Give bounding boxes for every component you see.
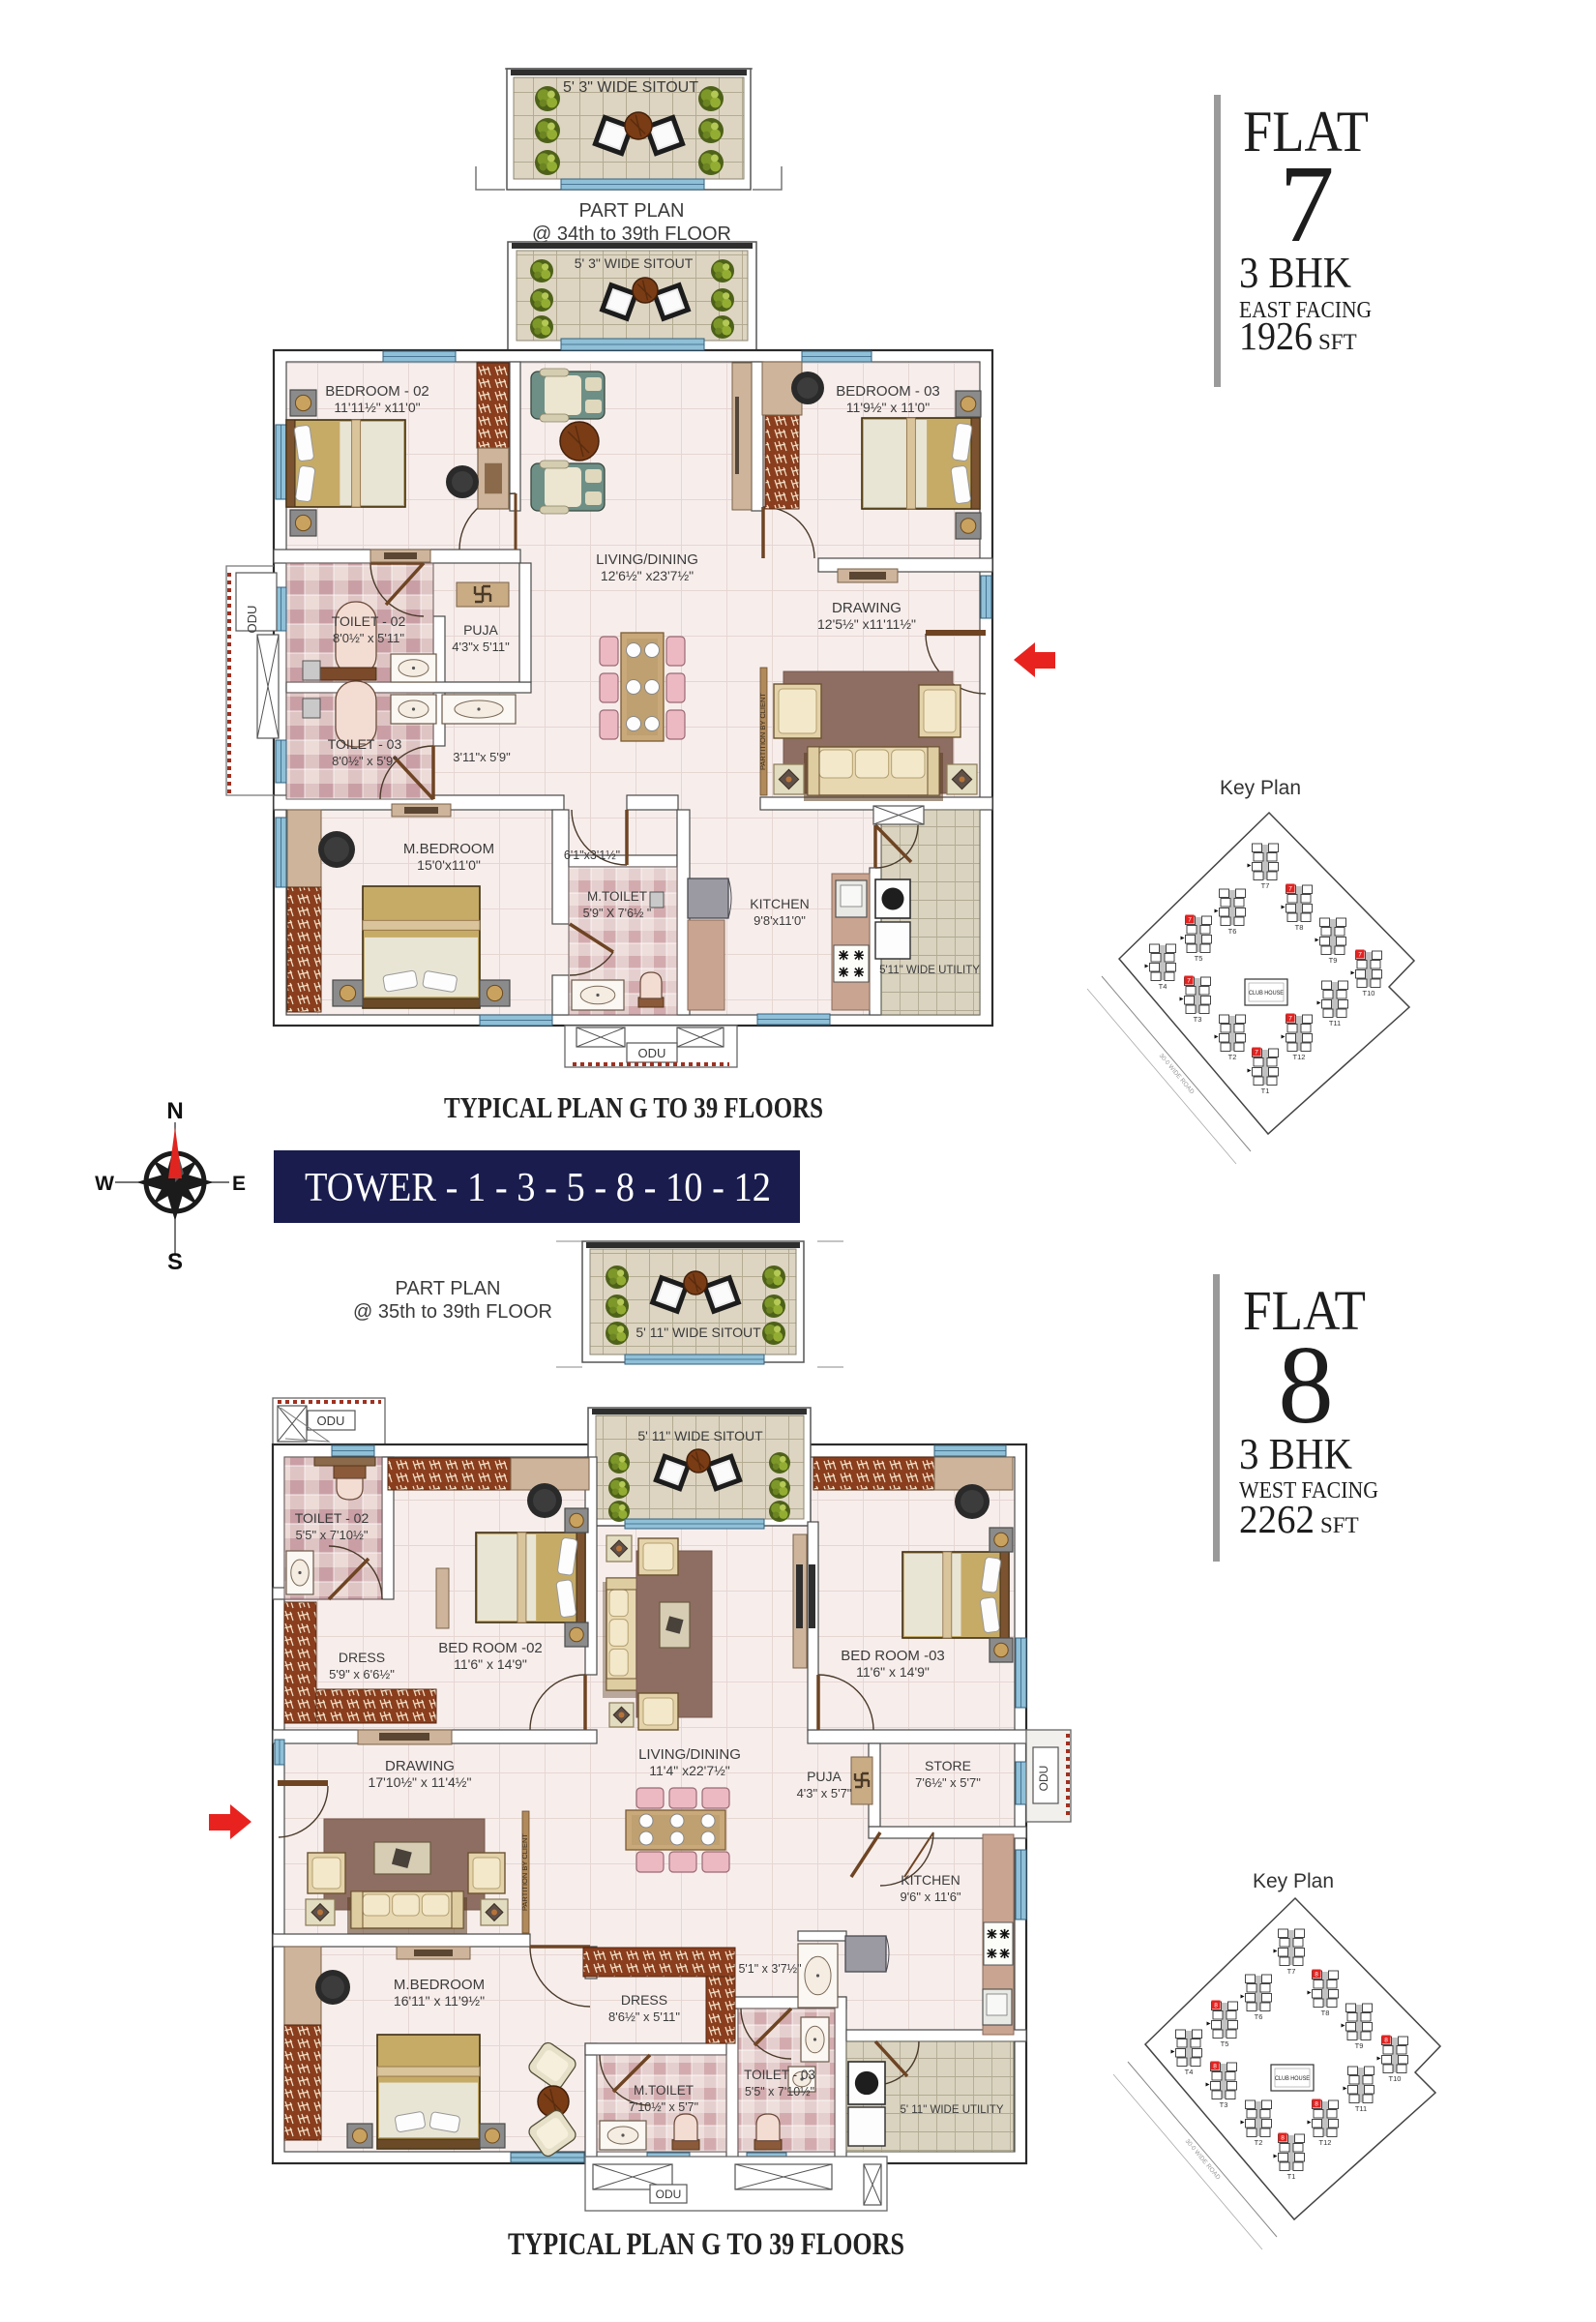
svg-text:8: 8 [1281,2135,1285,2142]
svg-text:T3: T3 [1194,1015,1202,1024]
svg-text:7: 7 [1188,917,1192,924]
svg-text:7: 7 [1358,952,1362,959]
svg-text:TOILET - 03: TOILET - 03 [328,736,402,752]
svg-text:5'5" x 7'10½": 5'5" x 7'10½" [745,2085,814,2099]
svg-text:15'0'x11'0": 15'0'x11'0" [417,857,481,873]
svg-text:PUJA: PUJA [463,622,498,638]
svg-text:DRAWING: DRAWING [385,1758,455,1774]
svg-text:TOILET - 02: TOILET - 02 [295,1510,369,1526]
svg-text:ODU: ODU [317,1414,345,1428]
svg-text:T12: T12 [1293,1053,1306,1061]
svg-text:T6: T6 [1255,2012,1263,2021]
svg-text:3 BHK: 3 BHK [1239,1430,1352,1478]
svg-text:T8: T8 [1295,923,1304,932]
svg-text:S: S [167,1249,183,1275]
svg-text:ODU: ODU [245,606,259,634]
svg-text:5' 11" WIDE UTILITY: 5' 11" WIDE UTILITY [900,2104,1003,2116]
svg-text:TOILET - 03: TOILET - 03 [744,2068,815,2082]
svg-text:LIVING/DINING: LIVING/DINING [596,551,698,568]
svg-text:7: 7 [1288,1016,1292,1023]
svg-text:M.TOILET: M.TOILET [587,889,647,904]
svg-text:T10: T10 [1363,989,1375,997]
svg-text:17'10½" x 11'4½": 17'10½" x 11'4½" [369,1774,472,1790]
svg-text:BED ROOM -02: BED ROOM -02 [438,1640,543,1656]
svg-text:ODU: ODU [656,2188,682,2201]
svg-text:5'9" x 6'6½": 5'9" x 6'6½" [329,1667,395,1682]
svg-text:1926: 1926 [1239,313,1313,358]
svg-text:T2: T2 [1255,2138,1263,2147]
svg-text:T11: T11 [1355,2104,1367,2113]
svg-text:T2: T2 [1228,1053,1237,1061]
svg-text:11'6" x 14'9": 11'6" x 14'9" [856,1664,930,1680]
svg-text:2262: 2262 [1239,1497,1315,1541]
svg-text:TYPICAL PLAN G TO 39 FLOORS: TYPICAL PLAN G TO 39 FLOORS [444,1090,823,1124]
svg-text:ODU: ODU [638,1046,666,1060]
svg-text:7: 7 [1255,1050,1258,1057]
svg-text:E: E [232,1173,246,1195]
svg-text:M.BEDROOM: M.BEDROOM [403,841,494,857]
svg-text:7: 7 [1288,886,1292,893]
svg-text:5' 11" WIDE SITOUT: 5' 11" WIDE SITOUT [637,1428,763,1444]
svg-text:T12: T12 [1319,2138,1332,2147]
svg-text:T9: T9 [1355,2041,1364,2050]
svg-text:PARTITION BY CLIENT: PARTITION BY CLIENT [758,693,767,770]
svg-text:DRESS: DRESS [621,1992,667,2008]
svg-text:7: 7 [1280,142,1335,265]
svg-text:SFT: SFT [1318,330,1357,354]
svg-text:PARTITION BY CLIENT: PARTITION BY CLIENT [520,1833,529,1911]
svg-text:8: 8 [1315,2101,1318,2108]
svg-text:4'3"x 5'11": 4'3"x 5'11" [452,640,510,654]
svg-text:8: 8 [1213,2064,1217,2070]
svg-text:7'10½" x 5'7": 7'10½" x 5'7" [629,2100,698,2114]
svg-text:12'5½" x11'11½": 12'5½" x11'11½" [817,616,916,632]
svg-text:T5: T5 [1195,954,1203,963]
svg-text:8'6½" x 5'11": 8'6½" x 5'11" [608,2009,680,2024]
svg-text:T7: T7 [1261,881,1270,890]
svg-text:T1: T1 [1287,2172,1296,2181]
svg-text:T3: T3 [1220,2100,1228,2109]
svg-text:M.TOILET: M.TOILET [634,2083,694,2098]
svg-text:5'5" x 7'10½": 5'5" x 7'10½" [296,1528,369,1542]
svg-text:KITCHEN: KITCHEN [901,1872,960,1888]
svg-text:7'6½" x 5'7": 7'6½" x 5'7" [915,1775,981,1790]
svg-text:LIVING/DINING: LIVING/DINING [638,1746,741,1763]
svg-text:W: W [95,1173,114,1195]
svg-text:DRAWING: DRAWING [832,600,901,616]
svg-text:PART PLAN: PART PLAN [579,200,685,222]
svg-text:KITCHEN: KITCHEN [750,896,809,911]
svg-text:T1: T1 [1261,1087,1270,1095]
svg-text:4'3" x 5'7": 4'3" x 5'7" [797,1786,852,1801]
svg-text:T5: T5 [1221,2039,1229,2048]
svg-text:3'11"x 5'9": 3'11"x 5'9" [453,750,511,764]
svg-text:BEDROOM - 03: BEDROOM - 03 [836,383,940,400]
svg-text:9'8'x11'0": 9'8'x11'0" [754,913,806,928]
svg-text:8: 8 [1384,2038,1388,2044]
svg-text:11'9½" x 11'0": 11'9½" x 11'0" [846,400,930,415]
svg-text:16'11" x 11'9½": 16'11" x 11'9½" [394,1993,485,2009]
svg-text:BEDROOM - 02: BEDROOM - 02 [325,383,429,400]
svg-text:SFT: SFT [1320,1513,1359,1537]
svg-text:6'1"x3'1½": 6'1"x3'1½" [564,848,620,862]
svg-text:CLUB HOUSE: CLUB HOUSE [1275,2075,1311,2082]
svg-text:T10: T10 [1389,2074,1402,2083]
svg-text:8'0½" x 5'11": 8'0½" x 5'11" [333,631,404,645]
svg-text:11'4" x22'7½": 11'4" x22'7½" [649,1763,730,1778]
svg-text:12'6½" x23'7½": 12'6½" x23'7½" [601,568,694,583]
svg-text:STORE: STORE [925,1758,971,1773]
svg-text:Key Plan: Key Plan [1253,1870,1334,1892]
svg-text:8'0½" x 5'9": 8'0½" x 5'9" [332,754,398,768]
svg-text:PART PLAN: PART PLAN [396,1278,501,1299]
svg-text:BED ROOM -03: BED ROOM -03 [841,1648,945,1664]
svg-text:TYPICAL PLAN G TO 39 FLOORS: TYPICAL PLAN G TO 39 FLOORS [508,2227,904,2262]
svg-text:T8: T8 [1321,2009,1330,2017]
svg-text:N: N [166,1098,183,1124]
svg-text:3 BHK: 3 BHK [1239,249,1351,297]
svg-text:8: 8 [1278,1324,1334,1446]
svg-text:TOILET - 02: TOILET - 02 [332,613,406,629]
svg-text:ODU: ODU [1037,1766,1050,1792]
svg-text:PUJA: PUJA [807,1769,842,1784]
svg-text:TOWER - 1 - 3 - 5 - 8 - 10 - 1: TOWER - 1 - 3 - 5 - 8 - 10 - 12 [305,1166,771,1210]
svg-text:T4: T4 [1185,2068,1194,2076]
svg-text:5'9" X 7'6½ ": 5'9" X 7'6½ " [583,907,652,920]
svg-text:Key Plan: Key Plan [1220,777,1301,799]
svg-text:5'1" x 3'7½": 5'1" x 3'7½" [738,1962,801,1976]
svg-text:DRESS: DRESS [339,1650,385,1665]
svg-text:T9: T9 [1329,956,1338,965]
svg-text:T11: T11 [1329,1019,1341,1027]
svg-text:11'11½" x11'0": 11'11½" x11'0" [334,400,420,415]
svg-text:T4: T4 [1159,982,1167,991]
svg-text:7: 7 [1187,978,1191,985]
svg-text:11'6" x 14'9": 11'6" x 14'9" [454,1656,527,1672]
svg-text:M.BEDROOM: M.BEDROOM [394,1977,485,1993]
svg-text:T6: T6 [1228,927,1237,936]
svg-text:8: 8 [1214,2003,1218,2009]
svg-text:T7: T7 [1287,1967,1296,1976]
svg-text:CLUB HOUSE: CLUB HOUSE [1249,990,1285,997]
svg-text:5' 3" WIDE SITOUT: 5' 3" WIDE SITOUT [563,79,698,96]
svg-text:5' 3" WIDE SITOUT: 5' 3" WIDE SITOUT [575,255,694,271]
svg-text:9'6" x 11'6": 9'6" x 11'6" [900,1890,961,1904]
svg-text:@ 35th to 39th FLOOR: @ 35th to 39th FLOOR [353,1301,552,1323]
svg-text:8: 8 [1315,1972,1318,1979]
svg-text:5' 11" WIDE SITOUT: 5' 11" WIDE SITOUT [635,1325,761,1340]
svg-text:5'11" WIDE UTILITY: 5'11" WIDE UTILITY [879,965,980,976]
